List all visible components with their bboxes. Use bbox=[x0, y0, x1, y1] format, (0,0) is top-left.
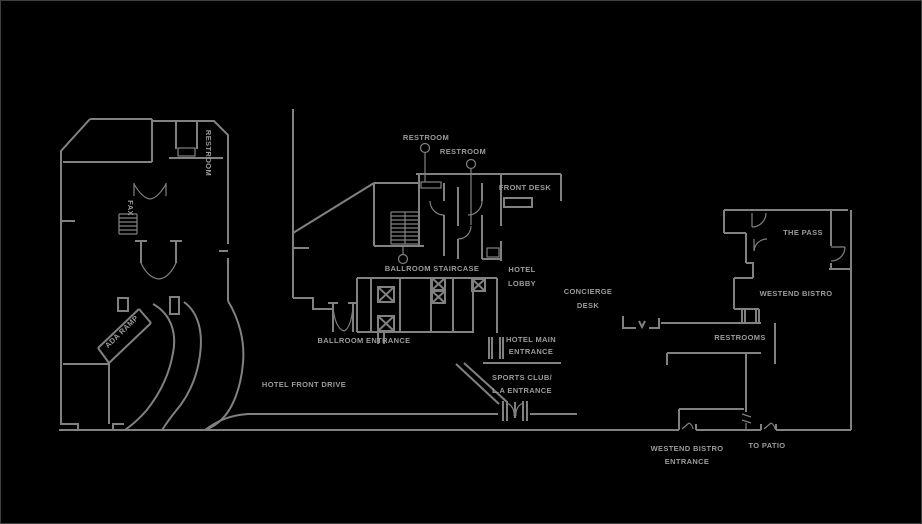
column-box bbox=[432, 291, 445, 303]
left-wing-walls bbox=[61, 119, 228, 429]
hotel-main-entrance-label-line1: HOTEL MAIN bbox=[506, 336, 556, 344]
column-box bbox=[432, 278, 445, 290]
hotel-front-drive-label: HOTEL FRONT DRIVE bbox=[262, 381, 346, 389]
leader-circle-restroom-1 bbox=[421, 144, 430, 153]
hotel-main-entrance-label-line2: ENTRANCE bbox=[509, 348, 553, 356]
patio-door-swing bbox=[764, 423, 775, 429]
front-desk-counter bbox=[504, 198, 532, 207]
hotel-lobby-label-line1: HOTEL bbox=[508, 266, 535, 274]
leader-circle-restroom-2 bbox=[467, 160, 476, 169]
left-wing-outline bbox=[61, 119, 228, 429]
porte-cochere-pillar bbox=[118, 298, 128, 311]
restroom-2-label: RESTROOM bbox=[440, 148, 486, 156]
bistro-entrance-door-swing bbox=[682, 423, 693, 429]
restroom-1-label: RESTROOM bbox=[403, 134, 449, 142]
concierge-desk-symbol bbox=[623, 316, 659, 328]
ballroom-entrance-label: BALLROOM ENTRANCE bbox=[317, 337, 410, 345]
concierge-desk-label-line2: DESK bbox=[577, 302, 599, 310]
wall-break-symbol bbox=[742, 414, 751, 430]
to-patio-label: TO PATIO bbox=[749, 442, 786, 450]
restroom-counter bbox=[421, 182, 441, 188]
ballroom-staircase-treads bbox=[391, 212, 419, 244]
road-top-edge bbox=[205, 414, 577, 430]
ballroom-staircase-label: BALLROOM STAIRCASE bbox=[385, 265, 480, 273]
south-door-jambs bbox=[135, 241, 182, 263]
restroom-fixture bbox=[487, 248, 499, 257]
leader-circle-staircase bbox=[399, 255, 408, 264]
restroom-fixture bbox=[178, 148, 195, 156]
westend-bistro-entrance-label-line2: ENTRANCE bbox=[665, 458, 709, 466]
front-desk-label: FRONT DESK bbox=[499, 184, 551, 192]
sports-club-door bbox=[503, 401, 527, 421]
restrooms-label: RESTROOMS bbox=[714, 334, 766, 342]
fax-label: FAX bbox=[126, 200, 134, 216]
sports-club-label-line1: SPORTS CLUB/ bbox=[492, 374, 552, 382]
drive-outer-curb bbox=[205, 301, 243, 430]
ballroom-entrance-swings bbox=[333, 307, 353, 331]
restroom-door-swings bbox=[430, 201, 482, 239]
lobby-wing-outline bbox=[293, 109, 561, 404]
drive-median-curb bbox=[162, 302, 201, 430]
south-door-swings bbox=[141, 263, 176, 279]
westend-bistro-entrance-label-line1: WESTEND BISTRO bbox=[651, 445, 724, 453]
bistro-wing-walls bbox=[661, 210, 851, 430]
concierge-desk-label-line1: CONCIERGE bbox=[564, 288, 613, 296]
hotel-lobby-label-line2: LOBBY bbox=[508, 280, 536, 288]
floorplan-canvas: RESTROOM FAX ADA RAMP RESTROOM RESTROOM … bbox=[0, 0, 922, 524]
sports-club-label-line2: L.A ENTRANCE bbox=[492, 387, 552, 395]
the-pass-label: THE PASS bbox=[783, 229, 823, 237]
hotel-front-drive-road bbox=[59, 301, 851, 430]
left-restroom-label: RESTROOM bbox=[204, 130, 212, 176]
fax-steps bbox=[119, 214, 137, 234]
bistro-outline bbox=[661, 210, 851, 430]
the-pass-door-swings bbox=[752, 213, 767, 251]
vestibule-double-door bbox=[134, 183, 166, 199]
column-box bbox=[378, 287, 394, 302]
porte-cochere-pillar bbox=[170, 297, 179, 314]
westend-bistro-label: WESTEND BISTRO bbox=[760, 290, 833, 298]
column-box bbox=[378, 316, 394, 331]
closet-door-swing bbox=[831, 247, 845, 261]
ada-ramp-walls bbox=[98, 309, 151, 363]
